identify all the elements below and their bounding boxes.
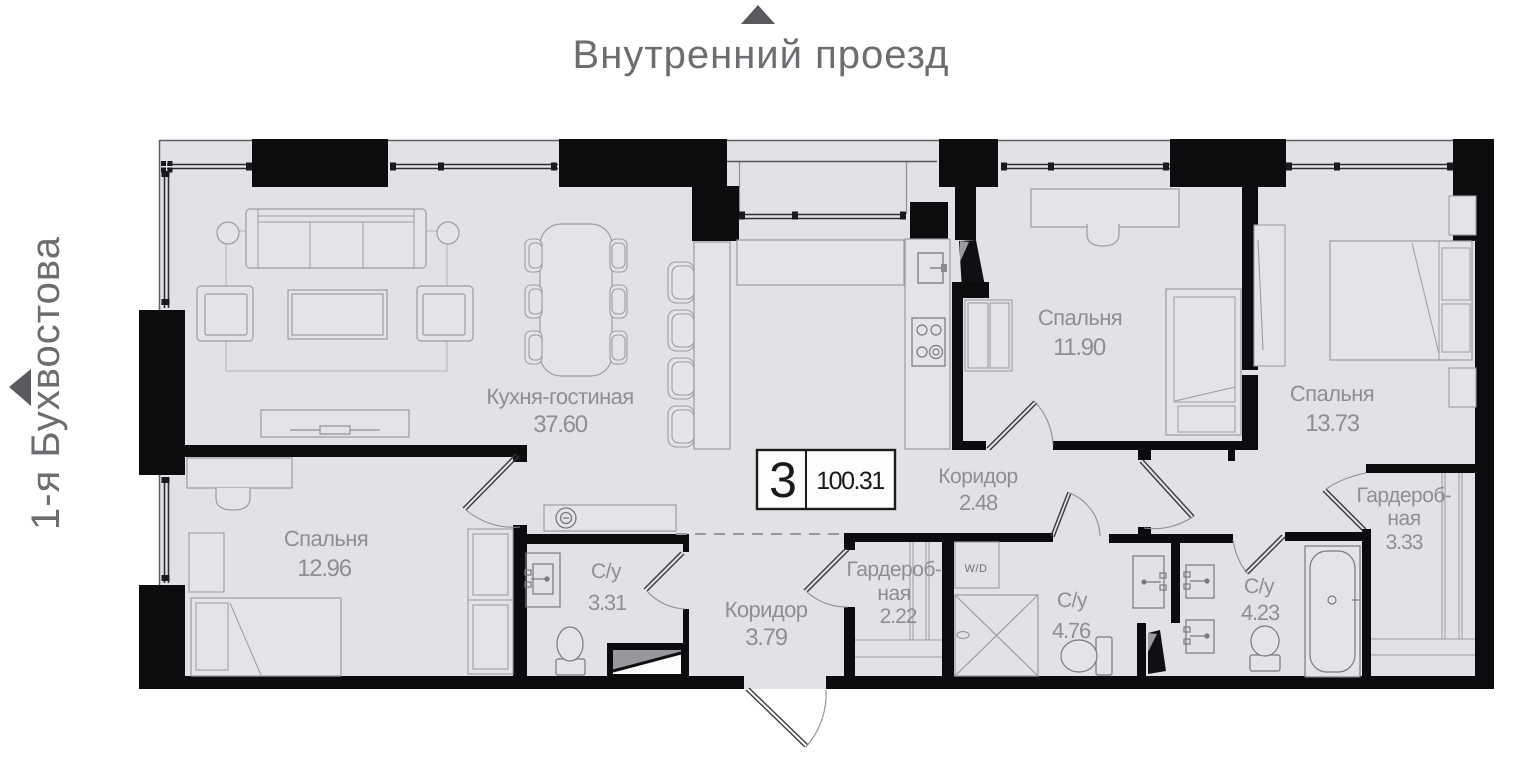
svg-text:Спальня: Спальня [284,526,368,551]
svg-text:4.23: 4.23 [1241,600,1280,625]
svg-text:W/D: W/D [965,563,988,575]
svg-text:ная: ная [877,582,910,605]
svg-text:4.76: 4.76 [1052,618,1091,643]
svg-text:С/у: С/у [591,560,622,583]
svg-text:11.90: 11.90 [1053,334,1106,361]
svg-text:С/у: С/у [1057,589,1088,612]
svg-text:13.73: 13.73 [1305,410,1360,437]
svg-text:12.96: 12.96 [297,555,352,582]
svg-text:2.48: 2.48 [959,490,998,515]
svg-text:3.79: 3.79 [745,624,787,651]
svg-text:37.60: 37.60 [533,411,588,438]
svg-text:Спальня: Спальня [1290,381,1374,406]
svg-text:Спальня: Спальня [1038,305,1122,330]
svg-text:Кухня-гостиная: Кухня-гостиная [486,384,633,409]
svg-text:Гардероб-: Гардероб- [847,558,942,581]
svg-text:Гардероб-: Гардероб- [1357,484,1452,507]
svg-text:ная: ная [1387,507,1420,530]
svg-text:100.31: 100.31 [816,467,884,495]
svg-text:Коридор: Коридор [938,465,1017,488]
svg-text:3.33: 3.33 [1386,531,1423,554]
svg-text:С/у: С/у [1244,575,1275,598]
svg-text:Внутренний проезд: Внутренний проезд [573,33,950,77]
svg-text:3.31: 3.31 [588,590,627,615]
svg-text:3: 3 [769,452,797,508]
svg-text:Коридор: Коридор [725,597,808,622]
svg-text:2.22: 2.22 [880,605,917,628]
